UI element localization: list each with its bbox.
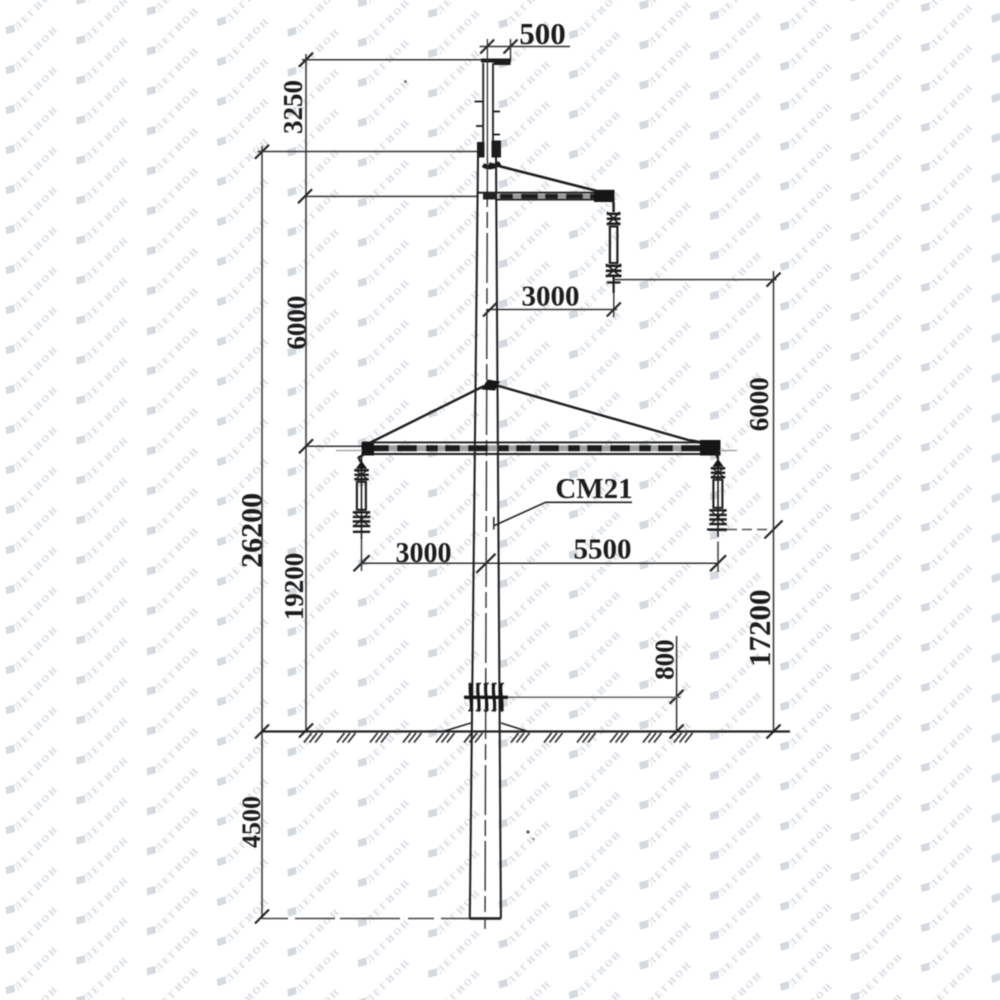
svg-text:800: 800 xyxy=(650,639,680,680)
svg-text:4500: 4500 xyxy=(237,796,266,848)
svg-text:6000: 6000 xyxy=(744,377,774,431)
svg-text:5500: 5500 xyxy=(574,534,632,566)
svg-text:3000: 3000 xyxy=(522,281,580,313)
svg-text:6000: 6000 xyxy=(282,296,312,350)
svg-text:19200: 19200 xyxy=(279,553,309,621)
svg-text:3000: 3000 xyxy=(396,538,452,569)
svg-text:26200: 26200 xyxy=(236,493,269,568)
svg-text:3250: 3250 xyxy=(278,80,308,134)
svg-text:17200: 17200 xyxy=(742,589,777,667)
svg-text:500: 500 xyxy=(519,16,566,51)
svg-text:СМ21: СМ21 xyxy=(555,473,632,505)
